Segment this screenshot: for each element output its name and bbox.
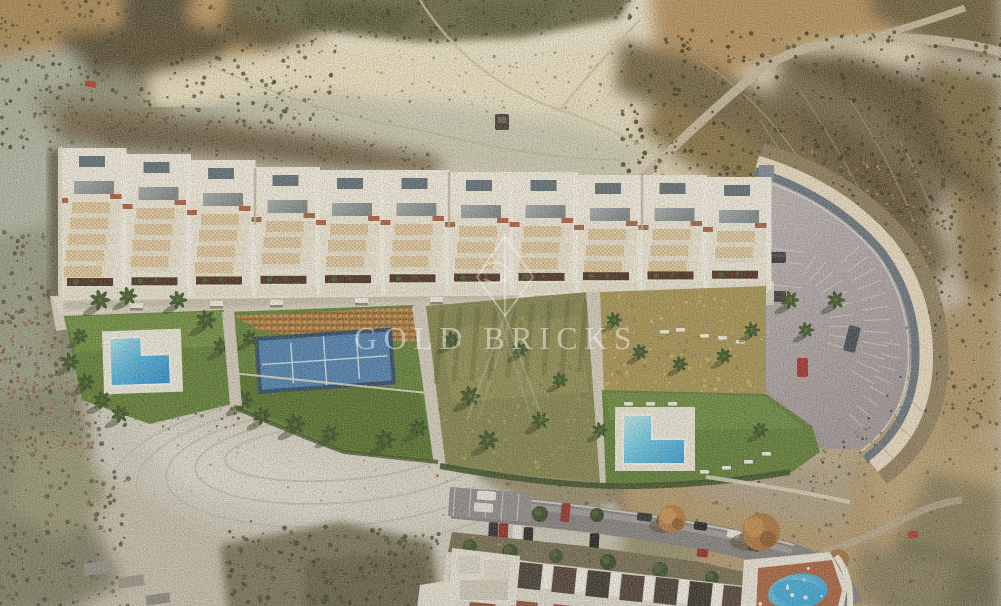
svg-text:GOLD BRICKS: GOLD BRICKS <box>354 320 638 356</box>
